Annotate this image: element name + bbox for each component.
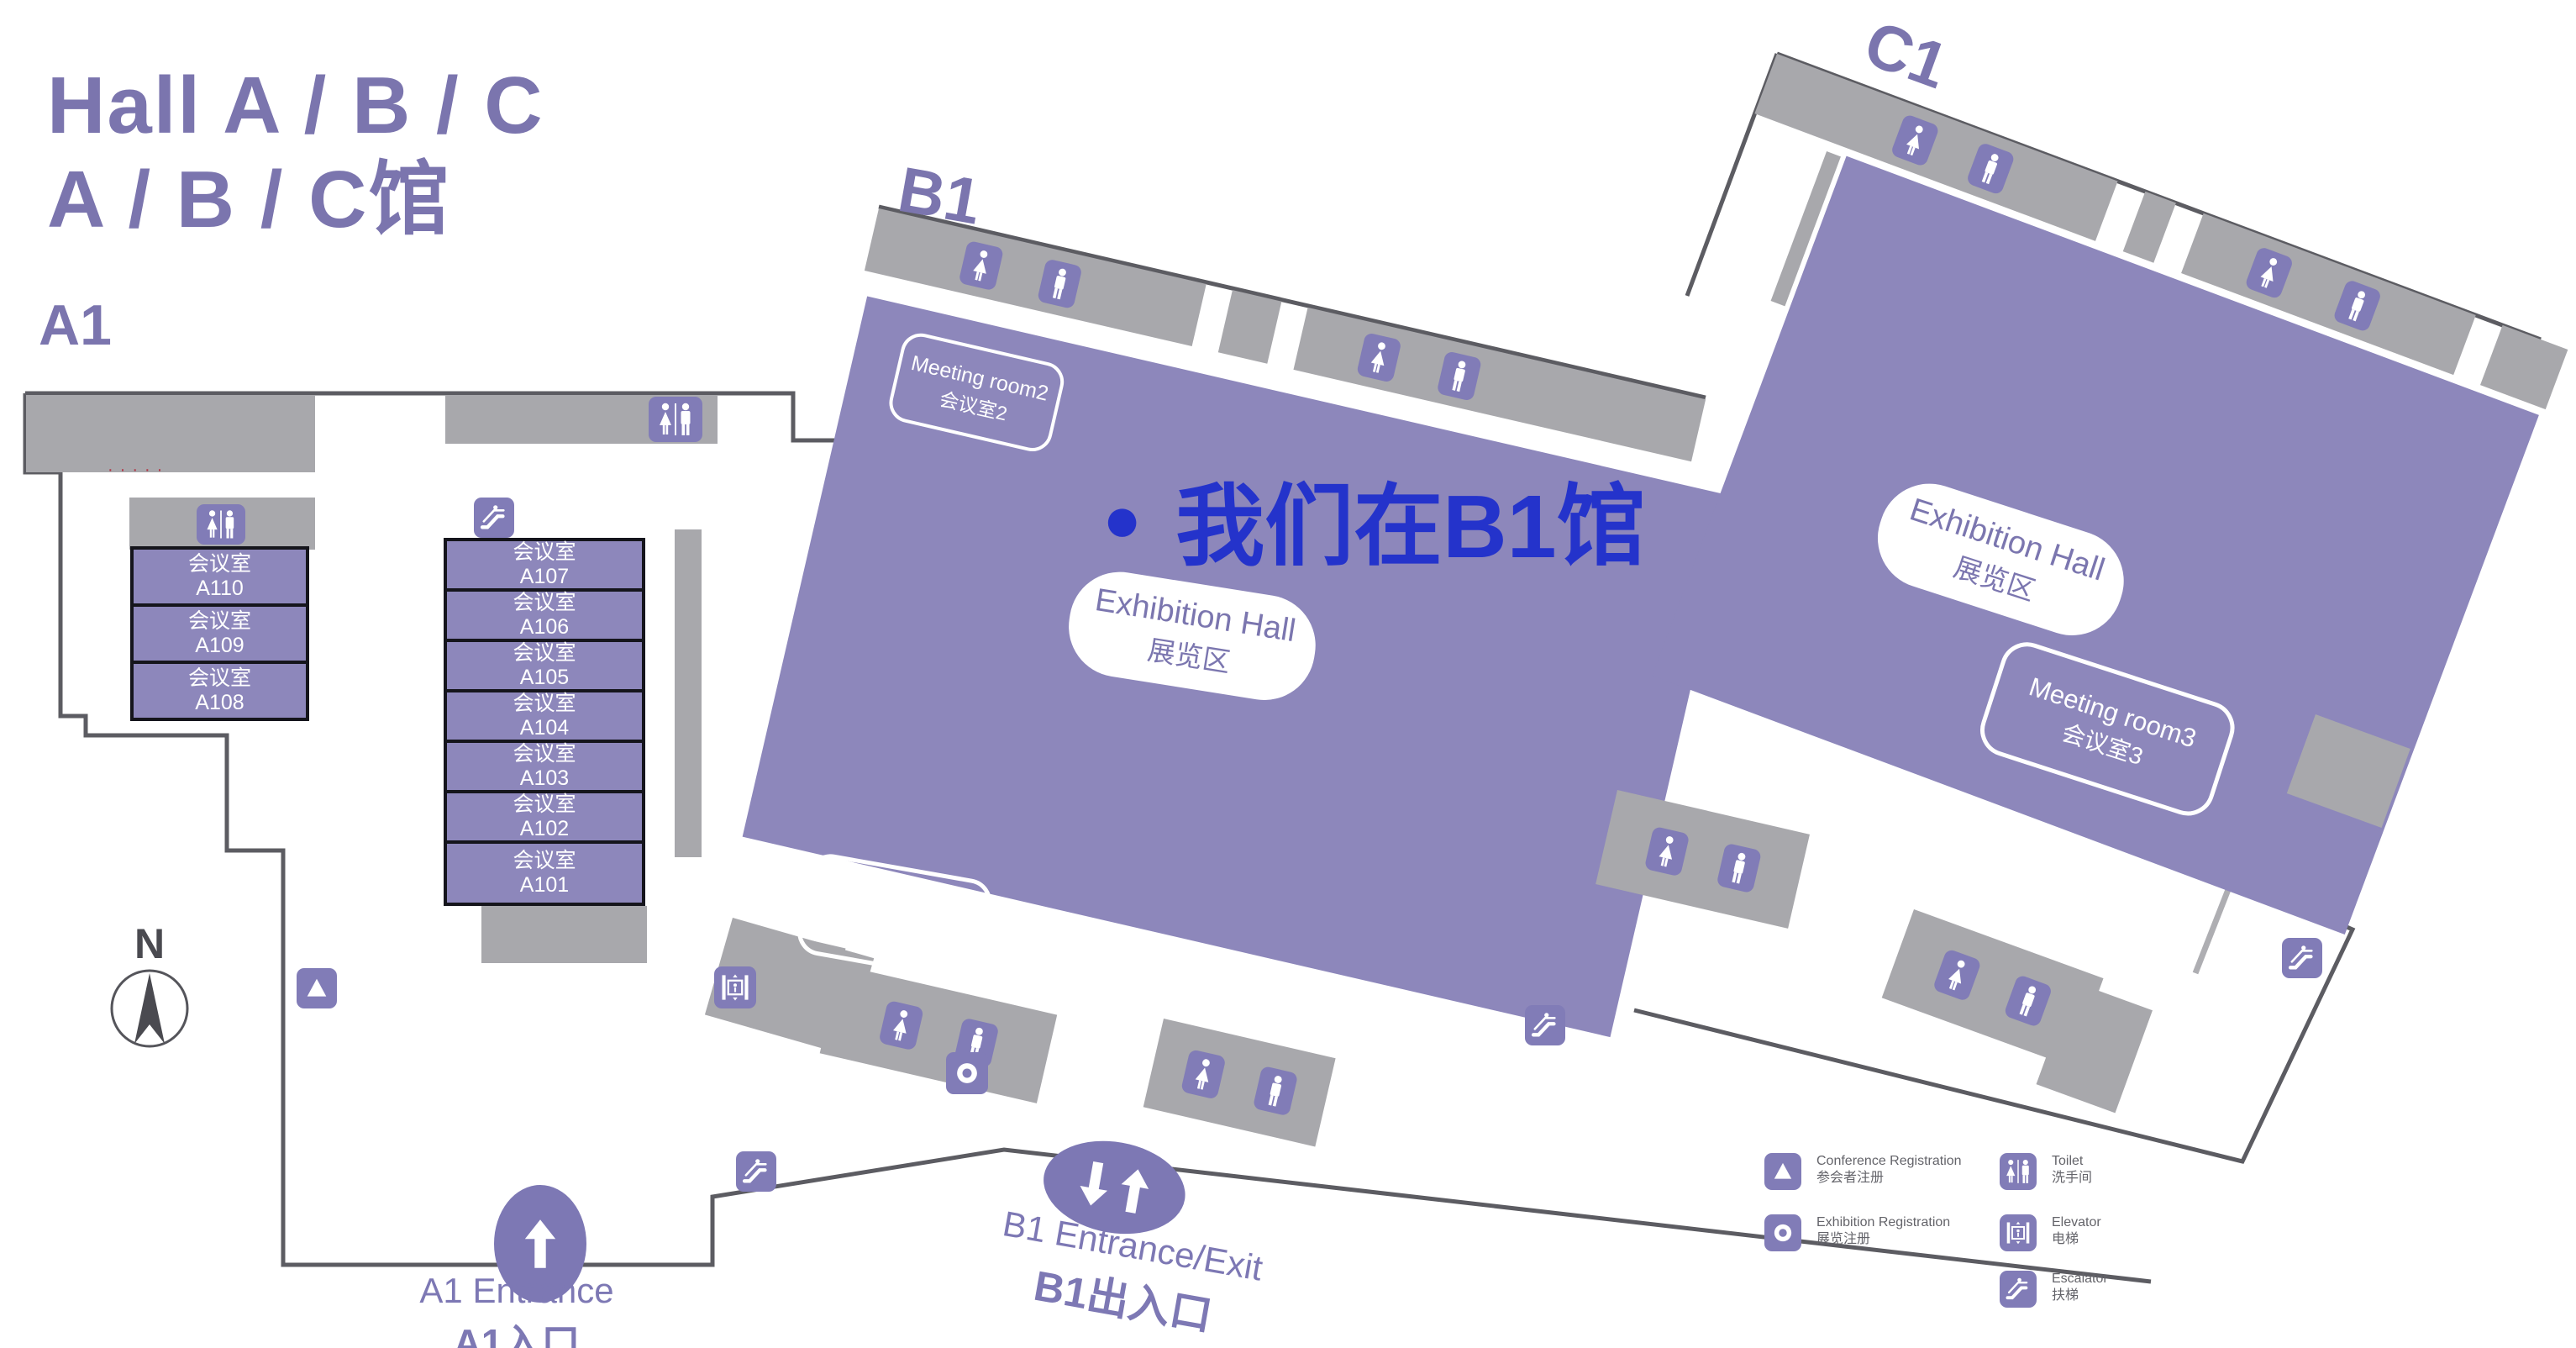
exhibition-registration-icon	[1764, 1214, 1801, 1251]
hall-label-a1: A1	[39, 292, 112, 358]
room-a104: 会议室 A104	[444, 689, 645, 743]
toilet-women-icon	[878, 1000, 924, 1051]
room-a102: 会议室 A102	[444, 790, 645, 844]
exhibition-registration-icon	[946, 1052, 988, 1094]
c1-corridor	[2480, 325, 2568, 409]
room-a107: 会议室 A107	[444, 538, 645, 592]
room-a109: 会议室 A109	[130, 603, 309, 664]
room-a105: 会议室 A105	[444, 639, 645, 692]
room-a110: 会议室 A110	[130, 546, 309, 607]
conference-registration-icon	[297, 968, 337, 1008]
b1-corridor	[1218, 290, 1282, 364]
elevator-icon	[2000, 1214, 2037, 1251]
elevator-icon	[714, 966, 756, 1008]
toilet-men-icon	[1716, 842, 1762, 893]
down-arrow-icon	[1074, 1158, 1115, 1210]
legend-elevator: Elevator 电梯	[2000, 1214, 2101, 1251]
a1-block-under-column	[481, 906, 647, 963]
c1-corridor	[2123, 192, 2176, 263]
room-column-mid: 会议室 A107 会议室 A106 会议室 A105 会议室 A104 会议室 …	[444, 538, 645, 906]
location-highlight: ● 我们在B1馆	[1102, 454, 1646, 583]
toilet-men-icon	[2003, 974, 2053, 1028]
up-arrow-icon	[522, 1218, 559, 1270]
room-a106: 会议室 A106	[444, 588, 645, 642]
escalator-icon	[1525, 1005, 1565, 1045]
toilet-women-icon	[1932, 948, 1982, 1002]
conference-registration-icon	[1764, 1153, 1801, 1190]
room-a103: 会议室 A103	[444, 740, 645, 793]
toilet-icon	[2000, 1153, 2037, 1190]
toilet-women-icon	[1643, 825, 1690, 877]
up-arrow-icon	[1113, 1165, 1154, 1217]
room-a108: 会议室 A108	[130, 661, 309, 721]
toilet-men-icon	[1253, 1066, 1299, 1117]
compass-n-label: N	[134, 920, 165, 967]
title-line2: A / B / C馆	[47, 153, 544, 247]
room-a101: 会议室 A101	[444, 840, 645, 906]
escalator-icon	[2282, 938, 2322, 978]
highlight-text: 我们在B1馆	[1175, 454, 1646, 583]
clipped-red-text: ·····	[108, 461, 200, 472]
page-title: Hall A / B / C A / B / C馆	[47, 59, 544, 247]
toilet-icon	[649, 397, 702, 442]
title-line1: Hall A / B / C	[47, 59, 544, 153]
escalator-icon	[736, 1151, 776, 1192]
legend-escalator: Escalator 扶梯	[2000, 1271, 2108, 1308]
escalator-icon	[474, 498, 514, 538]
toilet-icon	[197, 504, 245, 545]
a1-entrance-label: A1 Entrance A1入口	[370, 1271, 664, 1348]
highlight-bullet: ●	[1102, 481, 1142, 557]
legend-toilet: Toilet 洗手间	[2000, 1153, 2092, 1190]
legend-exhibition-registration: Exhibition Registration 展览注册	[1764, 1214, 1950, 1251]
escalator-icon	[2000, 1271, 2037, 1308]
floor-map: Hall A / B / C A / B / C馆 A1 B1 C1 ·····	[0, 0, 2576, 1348]
a1-wall-strip	[675, 529, 702, 857]
room-column-left: 会议室 A110 会议室 A109 会议室 A108	[130, 546, 309, 721]
legend-conference-registration: Conference Registration 参会者注册	[1764, 1153, 1962, 1190]
compass-icon: N	[101, 918, 202, 1056]
toilet-women-icon	[1180, 1049, 1227, 1100]
